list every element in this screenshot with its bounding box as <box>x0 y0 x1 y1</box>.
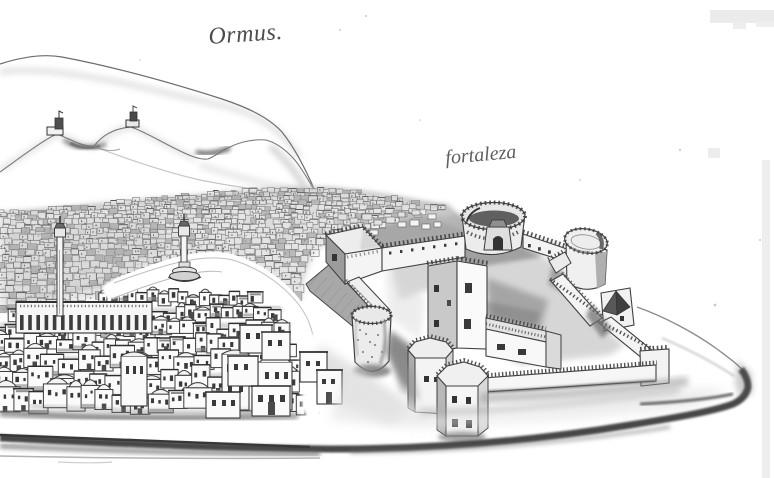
svg-text:Ormus.: Ormus. <box>208 19 284 50</box>
